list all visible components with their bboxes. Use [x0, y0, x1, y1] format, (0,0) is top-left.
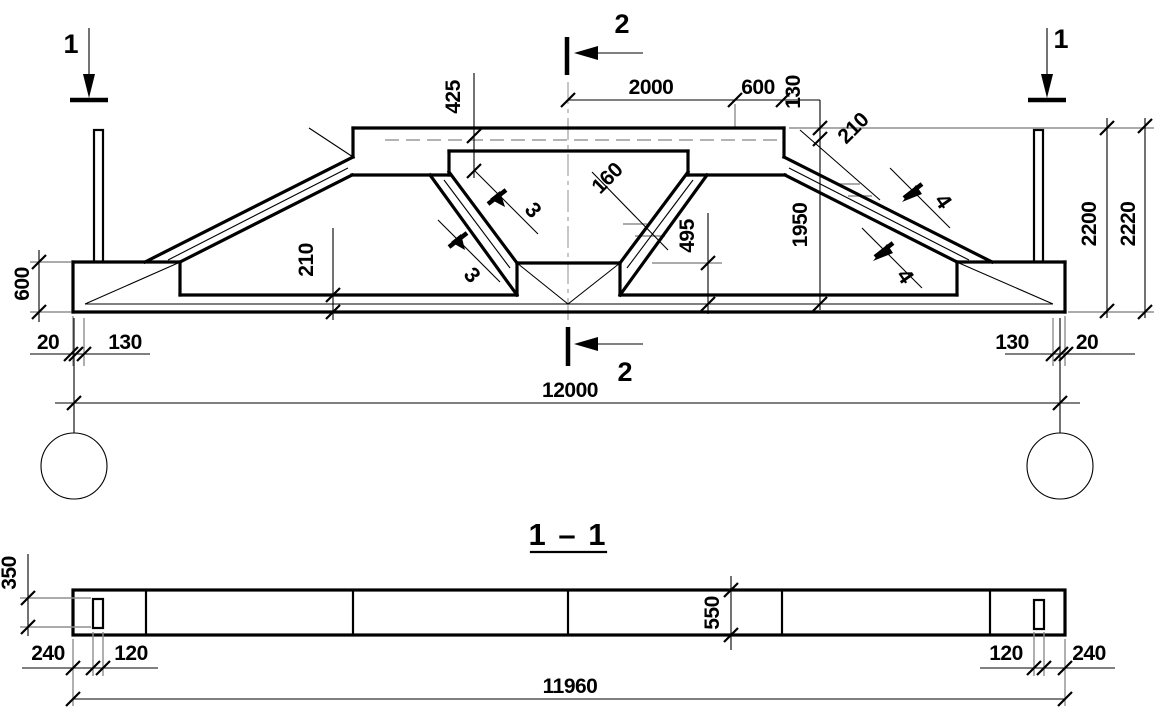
dim-beam-length: 11960: [543, 675, 598, 698]
dim-left-edge-inset: 130: [108, 331, 142, 354]
dim-left-end-offset: 240: [31, 642, 65, 665]
right-embedded-post: [1034, 130, 1043, 262]
elevation-dim-lines: [30, 73, 1145, 403]
drawing-canvas: 1 1 2 2 3 3: [0, 0, 1161, 718]
cut-label-3-upper: 3: [520, 197, 547, 222]
dim-beam-depth: 550: [701, 596, 724, 630]
dim-flange-ledge-drop: 425: [442, 79, 465, 113]
left-embedded-plate: [93, 599, 103, 628]
dim-bottom-chord-depth: 210: [295, 243, 318, 277]
grid-bubble-left: [41, 433, 107, 499]
dim-right-plate-width: 120: [989, 642, 1023, 665]
section-marker-1-right: 1: [1028, 24, 1069, 100]
dim-slope-thickness: 210: [833, 108, 873, 148]
dim-right-edge-inset: 130: [995, 331, 1029, 354]
section-view: 1 – 1: [0, 517, 1115, 706]
dim-slope-rise: 1950: [789, 203, 812, 248]
cut-label-1-left: 1: [63, 29, 78, 59]
cut-label-2-bottom: 2: [617, 357, 632, 387]
beam-outline: [73, 590, 1065, 635]
dim-left-plate-width: 120: [114, 642, 148, 665]
section-marker-4-upper: 4: [890, 168, 958, 228]
cut-label-4-lower: 4: [892, 264, 920, 289]
dim-top-half-span: 2000: [629, 76, 674, 99]
right-embedded-plate: [1034, 600, 1044, 629]
dim-right-end-offset: 240: [1072, 642, 1106, 665]
section-marker-3-upper: 3: [474, 170, 547, 234]
dim-right-overhang: 20: [1076, 331, 1098, 354]
section-marker-4-lower: 4: [862, 228, 922, 289]
section-marker-2-top: 2: [567, 9, 643, 75]
dim-top-offset: 600: [741, 76, 775, 99]
dim-support-block-depth: 600: [11, 267, 34, 301]
section-dim-texts: 350 240 120 550 120 240 11960: [0, 556, 1106, 698]
dim-flange-edge-drop: 130: [782, 75, 805, 109]
dim-height-to-top: 2200: [1078, 202, 1101, 247]
section-title: 1 – 1: [529, 517, 608, 552]
dim-plate-length: 350: [0, 556, 21, 590]
cut-label-2-top: 2: [614, 9, 629, 39]
elevation-view: 1 1 2 2 3 3: [11, 9, 1154, 499]
truss-outline: [73, 128, 1065, 312]
dim-span: 12000: [542, 379, 598, 402]
left-embedded-post: [94, 130, 103, 262]
cut-label-4-upper: 4: [930, 189, 958, 214]
dim-left-overhang: 20: [37, 331, 59, 354]
grid-bubble-right: [1027, 433, 1093, 499]
dim-web-node-drop: 495: [676, 218, 699, 252]
dim-web-thickness: 160: [587, 158, 627, 198]
section-marker-2-bottom: 2: [568, 327, 643, 387]
dim-overall-height: 2220: [1117, 202, 1140, 247]
cut-label-3-lower: 3: [459, 262, 486, 287]
elevation-dim-texts: 2000 600 130 425 160 210 210 495 1950 22…: [11, 75, 1140, 402]
cut-label-1-right: 1: [1053, 24, 1068, 54]
truss-drawing: 1 1 2 2 3 3: [0, 0, 1161, 718]
section-marker-1-left: 1: [63, 28, 108, 100]
